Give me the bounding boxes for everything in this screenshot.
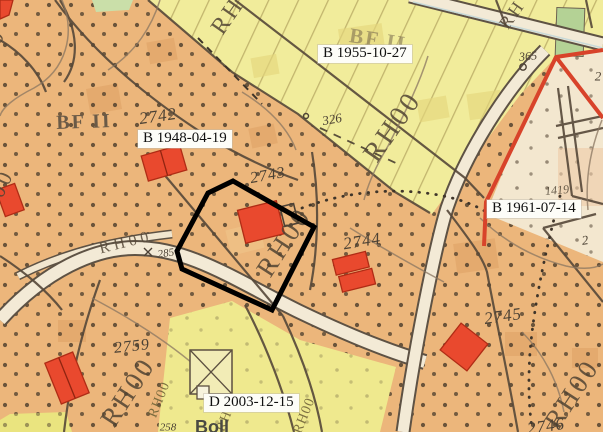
outlined-structures xyxy=(190,350,232,399)
survey-mark-2-edge: 2 xyxy=(595,70,602,83)
zone-code-bf2-left: BF II xyxy=(56,111,112,133)
survey-mark-1419: 1419 xyxy=(545,183,570,197)
plan-label-d2003: D 2003-12-15 xyxy=(204,394,299,412)
bollplan-label: Boll xyxy=(195,418,229,432)
plan-label-b1961: B 1961-07-14 xyxy=(487,200,581,218)
survey-mark-258: 258 xyxy=(160,423,177,432)
survey-mark-326: 326 xyxy=(321,111,342,127)
plan-label-b1948: B 1948-04-19 xyxy=(138,130,232,148)
parcel-number-2746: 2746 xyxy=(526,415,566,432)
plan-label-b1955: B 1955-10-27 xyxy=(318,45,412,63)
survey-mark-285: 285 xyxy=(157,247,175,260)
map-canvas[interactable]: RH00 RH00 RH00 RH00 RH RH RH00 RH00 RH00… xyxy=(0,0,603,432)
survey-mark-2-right: 2 xyxy=(581,233,589,247)
survey-mark-365: 365 xyxy=(519,49,538,63)
